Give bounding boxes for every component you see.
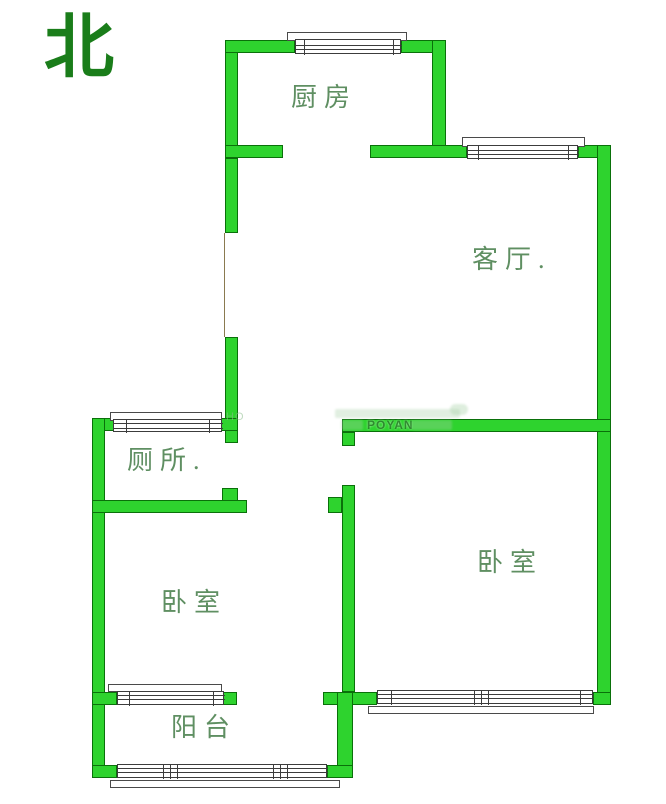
- living-room-label: 客厅.: [472, 246, 552, 275]
- wall-kitchen-right: [432, 40, 446, 158]
- toilet-window: [113, 419, 222, 432]
- wall-bedroom-left-door-jamb: [328, 497, 342, 513]
- wall-kitchen-bottom-left: [225, 145, 283, 158]
- wall-mid-divider-stub: [342, 432, 355, 446]
- watermark-blur: [412, 420, 452, 430]
- watermark-blur: [335, 409, 460, 418]
- wall-living-top-left: [370, 145, 467, 158]
- opening-edge-line: [224, 233, 225, 337]
- bedroom-right-label: 卧室: [477, 549, 543, 578]
- kitchen-label: 厨房: [291, 84, 357, 113]
- wall-balcony-bottom-right: [327, 765, 353, 778]
- watermark-text: HO: [226, 411, 245, 423]
- wall-toilet-bottom: [92, 500, 247, 513]
- wall-outer-left: [92, 418, 105, 778]
- living-window: [467, 145, 578, 159]
- toilet-label: 厕所.: [127, 447, 207, 476]
- wall-balcony-top-jamb: [223, 692, 237, 705]
- wall-bedroom-right-left: [342, 485, 355, 692]
- balcony-label: 阳台: [171, 714, 237, 743]
- wall-balcony-bottom-left: [92, 765, 117, 778]
- kitchen-window: [295, 39, 401, 54]
- wall-kitchen-top-left: [225, 40, 295, 53]
- bedroom-left-label: 卧室: [161, 589, 227, 618]
- bedroom-right-window-sill: [368, 706, 594, 714]
- north-label: 北: [44, 14, 114, 84]
- bedroom-balcony-window: [117, 691, 224, 705]
- watermark-logo: [450, 404, 468, 415]
- wall-balcony-top-left-corner: [92, 692, 117, 705]
- wall-bedroom-right-bottom-corner: [593, 692, 611, 705]
- balcony-window-sill: [110, 780, 340, 788]
- floor-plan: 北: [0, 0, 666, 804]
- bedroom-right-window: [377, 690, 593, 704]
- watermark-blur: [341, 420, 363, 430]
- balcony-window: [117, 764, 327, 778]
- wall-living-left-upper: [225, 158, 238, 233]
- wall-kitchen-left: [225, 40, 238, 160]
- watermark-brand: POYAN: [367, 418, 414, 432]
